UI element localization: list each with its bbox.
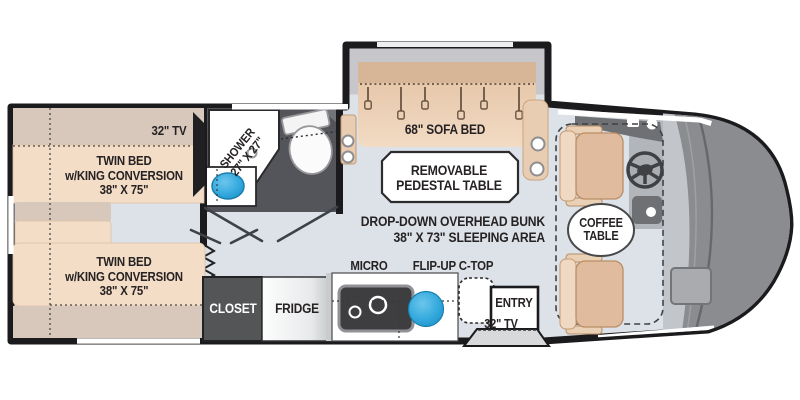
floorplan-drawing xyxy=(0,0,800,400)
pedestal-line1: REMOVABLE xyxy=(396,163,502,178)
engine-panel xyxy=(671,268,711,304)
nightstand xyxy=(15,202,111,222)
bed-front-line2: w/KING CONVERSION xyxy=(65,169,183,184)
nightstand xyxy=(15,221,111,245)
bed-rear-line3: 38" X 75" xyxy=(65,284,183,299)
bed-rear-line2: w/KING CONVERSION xyxy=(65,270,183,285)
overhead-bunk-label: DROP-DOWN OVERHEAD BUNK 38" X 73" SLEEPI… xyxy=(361,214,545,245)
cup-holder-icon xyxy=(532,138,545,151)
entry-tv-label: 32" TV xyxy=(484,317,518,331)
coffee-table-label: COFFEE TABLE xyxy=(579,217,623,243)
rv-floorplan: 32" TV TWIN BED w/KING CONVERSION 38" X … xyxy=(0,0,800,400)
coffee-line2: TABLE xyxy=(579,230,623,243)
kitchen-sink-icon xyxy=(409,292,444,327)
flip-up-ctop-label: FLIP-UP C-TOP xyxy=(413,259,494,274)
bed-front-line1: TWIN BED xyxy=(65,154,183,169)
dash-vent-circle xyxy=(647,119,658,130)
bed-front-label: TWIN BED w/KING CONVERSION 38" X 75" xyxy=(65,154,183,198)
entry-step xyxy=(464,329,549,346)
fridge-label: FRIDGE xyxy=(275,301,319,316)
bed-front-line3: 38" X 75" xyxy=(65,183,183,198)
cup-holder-icon xyxy=(531,163,544,176)
bunk-line2: 38" X 73" SLEEPING AREA xyxy=(361,230,545,246)
captain-chair-front xyxy=(560,126,623,206)
sofa-bed-label: 68" SOFA BED xyxy=(405,122,485,137)
dash-vent-square xyxy=(627,117,639,127)
window-left xyxy=(8,196,13,254)
window-top xyxy=(232,104,348,110)
micro-label: MICRO xyxy=(350,259,387,274)
bunk-line1: DROP-DOWN OVERHEAD BUNK xyxy=(361,214,545,230)
bedroom-tv-icon xyxy=(193,112,205,197)
steering-wheel-icon xyxy=(628,153,662,187)
bedroom-tv-label: 32" TV xyxy=(152,124,187,139)
pedestal-table-label: REMOVABLE PEDESTAL TABLE xyxy=(396,163,502,194)
bed-rear-label: TWIN BED w/KING CONVERSION 38" X 75" xyxy=(65,255,183,299)
bed-rear-line1: TWIN BED xyxy=(65,255,183,270)
bed-rear-foot xyxy=(13,306,205,338)
window-bottom xyxy=(77,338,200,343)
entry-label: ENTRY xyxy=(495,296,532,311)
window-slideout xyxy=(377,42,513,47)
pedestal-line2: PEDESTAL TABLE xyxy=(396,178,502,193)
captain-chair-rear xyxy=(560,254,623,334)
cup-holder-icon xyxy=(343,152,354,163)
console-knob xyxy=(646,207,656,217)
cup-holder-icon xyxy=(343,136,354,147)
closet-label: CLOSET xyxy=(209,301,256,316)
